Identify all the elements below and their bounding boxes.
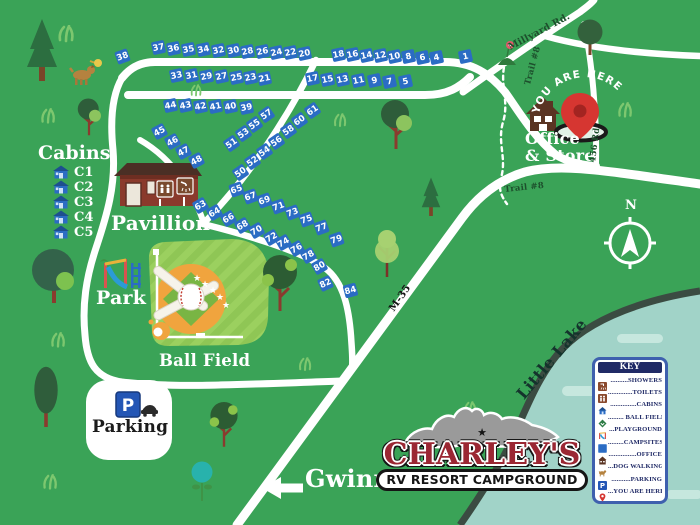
key-entry: ...PLAYGROUND [598,424,662,436]
pavillion-building [114,163,202,206]
cabin-list-item: C1 [52,165,110,179]
cabin-label: C2 [74,180,93,195]
key-entry: ................OFFICE [598,448,662,460]
cabin-label: C4 [74,210,93,225]
key-entry-label: ..............TOILETS [608,389,662,396]
playground-icon [598,425,608,434]
toilets-icon [598,388,608,397]
dog-walking-icon [598,462,608,471]
key-title: KEY [598,362,662,373]
toilets-sign-icon [157,181,173,197]
key-entry: ...DOG WALKING [598,461,662,473]
key-entry: .........CAMPSITES [598,436,662,448]
cabin-icon [52,195,70,209]
key-entry-label: ................OFFICE [608,451,662,458]
svg-text:★: ★ [222,301,230,311]
key-entry-label: ..........SHOWERS [608,377,662,384]
key-entry: ...YOU ARE HERE [598,486,662,498]
svg-text:P: P [122,396,134,416]
ball-field-icon [598,413,608,422]
cabin-list-item: C3 [52,195,110,209]
campground-map: P ★★★ [0,0,700,525]
key-entry-label: ...........PARKING [608,476,662,483]
key-entry-label: ...YOU ARE HERE [608,488,662,495]
cabin-icon [52,225,70,239]
key-entry: ..............TOILETS [598,386,662,398]
cabin-list-item: C4 [52,210,110,224]
cabins-icon [598,400,608,409]
office-icon [598,450,608,459]
cabins-list: Cabins C1C2C3C4C5 [38,142,110,239]
cabin-label: C1 [74,165,93,180]
cabin-icon [52,165,70,179]
key-entry-label: ......... BALL FIELD [608,414,662,421]
cabin-label: C3 [74,195,93,210]
svg-text:★: ★ [201,280,209,290]
key-entry: ......... BALL FIELD [598,411,662,423]
map-key: KEY ..........SHOWERS..............TOILE… [592,357,668,504]
ball-field: ★★★ ★★ [149,239,270,346]
cabins-title: Cabins [38,142,110,164]
campsites-icon [598,438,608,447]
cabin-icon [52,180,70,194]
shower-icon [598,376,608,385]
key-entry-label: ...............CABINS [608,401,662,408]
logo-tagline: RV RESORT CAMPGROUND [376,469,587,491]
key-entry: ...............CABINS [598,399,662,411]
charleys-logo: ★ CHARLEY'S RV RESORT CAMPGROUND [381,403,583,491]
key-entry: P...........PARKING [598,473,662,485]
key-entry-label: .........CAMPSITES [608,439,662,446]
cabin-list-item: C2 [52,180,110,194]
key-entry-label: ...PLAYGROUND [608,426,662,433]
you-are-here-icon [598,487,608,496]
svg-text:★: ★ [193,274,201,284]
logo-name: CHARLEY'S [384,437,581,472]
cabin-icon [52,210,70,224]
key-entry-label: ...DOG WALKING [608,463,662,470]
parking-icon: P [598,475,608,484]
showers-sign-icon [177,178,193,194]
key-entry: ..........SHOWERS [598,374,662,386]
cabin-list-item: C5 [52,225,110,239]
cabin-label: C5 [74,225,93,240]
